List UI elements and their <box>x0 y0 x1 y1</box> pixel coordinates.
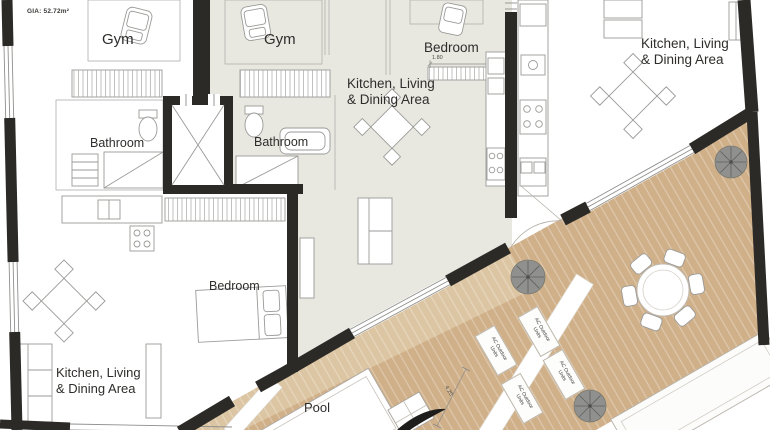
floorplan-canvas: GIA: 52.72m² Gym Gym Bedroom 1.80 Kitche… <box>0 0 770 430</box>
room-label-kld-left: Kitchen, Living & Dining Area <box>56 365 141 397</box>
room-label-pool: Pool <box>304 400 330 415</box>
sofa-icon <box>604 0 642 18</box>
room-label-bathroom-left: Bathroom <box>90 136 144 150</box>
room-label-bedroom-left: Bedroom <box>209 279 260 293</box>
toilet-icon <box>245 113 263 137</box>
room-label-gym-middle: Gym <box>264 31 296 48</box>
room-label-gym-left: Gym <box>102 31 134 48</box>
room-label-bedroom-top: Bedroom <box>424 40 479 56</box>
plant-icon <box>574 390 606 422</box>
tv-console-icon <box>146 344 161 418</box>
room-label-kld-right: Kitchen, Living & Dining Area <box>641 36 729 68</box>
bed-icon <box>196 286 289 343</box>
gia-label: GIA: 52.72m² <box>27 8 69 15</box>
plant-icon <box>511 260 545 294</box>
sofa-icon <box>358 198 392 264</box>
plant-icon <box>715 146 747 178</box>
room-label-kld-middle: Kitchen, Living & Dining Area <box>347 76 435 108</box>
tv-console-icon <box>300 238 314 298</box>
dimension-label-bedroom: 1.80 <box>432 55 443 61</box>
room-label-bathroom-middle: Bathroom <box>254 135 308 149</box>
elevator-shaft-icon <box>163 94 233 194</box>
stove-icon <box>130 226 154 251</box>
dining-table-icon <box>23 260 105 342</box>
